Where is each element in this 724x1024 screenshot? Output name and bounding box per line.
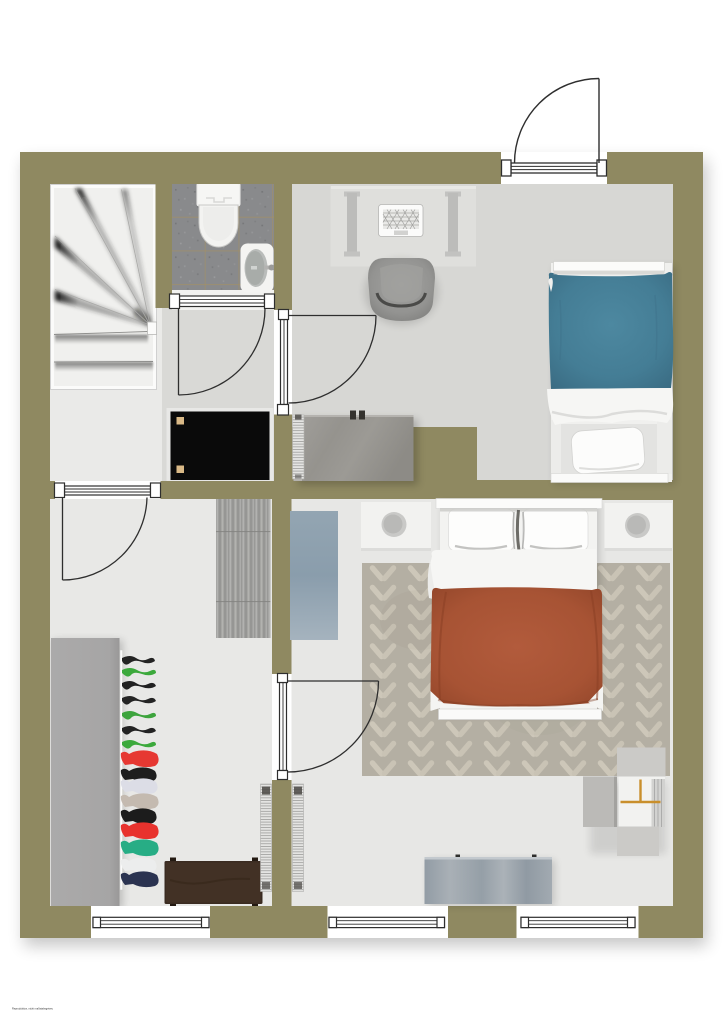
svg-text:Reproduktion, nicht maßstabsge: Reproduktion, nicht maßstabsgetreu [12, 1007, 53, 1011]
